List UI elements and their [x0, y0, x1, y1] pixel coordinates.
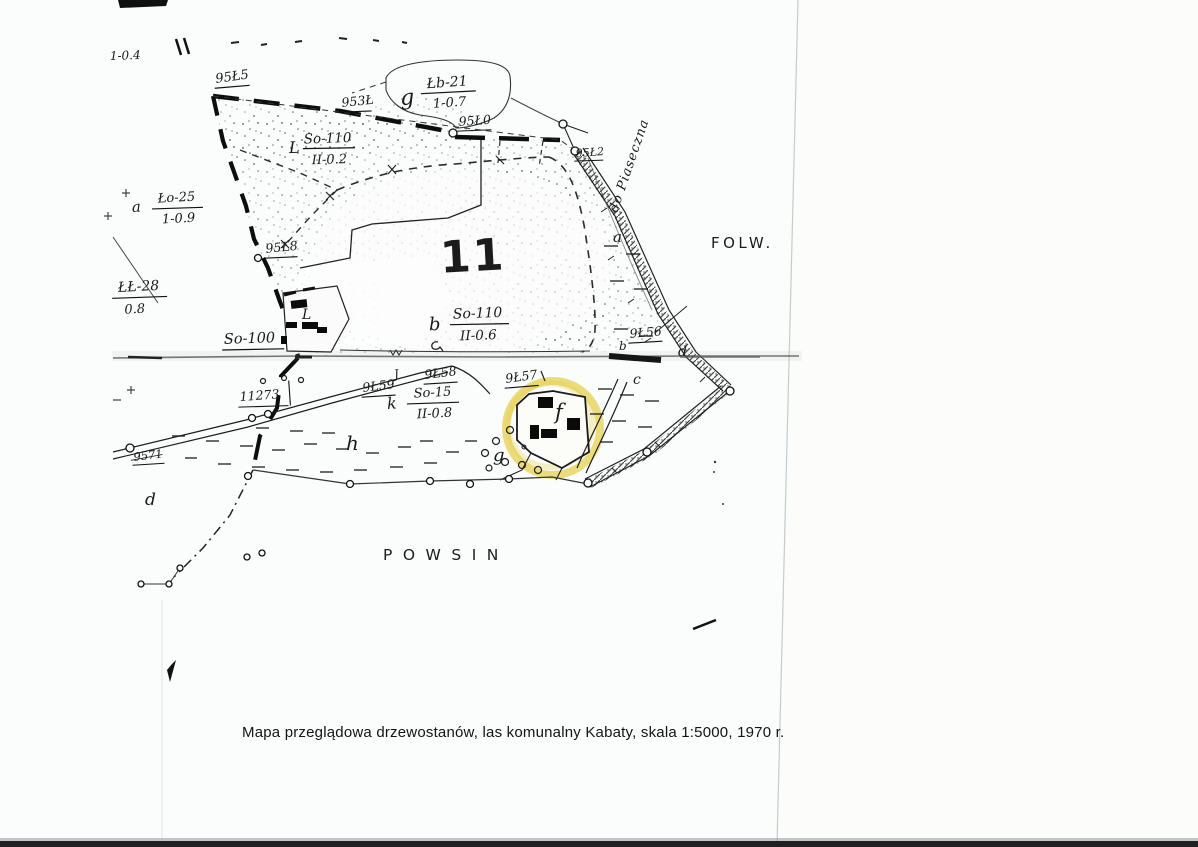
svg-text:So-15: So-15 — [413, 385, 451, 402]
svg-text:c: c — [633, 372, 641, 388]
svg-text:II-0.2: II-0.2 — [310, 152, 347, 168]
svg-text:L: L — [288, 138, 300, 157]
svg-text:1-0.7: 1-0.7 — [432, 95, 467, 112]
svg-text:So-110: So-110 — [303, 130, 352, 148]
svg-text:h: h — [346, 431, 359, 455]
svg-text:a: a — [613, 228, 622, 246]
svg-text:L: L — [301, 307, 311, 323]
fold-smudge-line — [112, 351, 802, 361]
svg-text:a: a — [131, 198, 141, 216]
svg-text:ŁŁ-28: ŁŁ-28 — [117, 278, 160, 296]
svg-text:9Ł56: 9Ł56 — [629, 323, 662, 341]
region-folw-label: FOLW. — [711, 234, 774, 252]
svg-text:b: b — [619, 339, 627, 353]
svg-text:g: g — [399, 85, 415, 111]
svg-text:Łb-21: Łb-21 — [425, 73, 468, 92]
svg-text:d: d — [145, 490, 156, 510]
svg-text:11273: 11273 — [239, 386, 280, 404]
map-caption: Mapa przeglądowa drzewostanów, las komun… — [242, 724, 802, 741]
compartment-number: 11 — [439, 229, 507, 283]
svg-text:1-0.9: 1-0.9 — [162, 211, 196, 228]
svg-text:95Ł2: 95Ł2 — [575, 145, 604, 160]
svg-text:So-110: So-110 — [453, 305, 503, 323]
svg-text:So-100: So-100 — [224, 330, 276, 348]
svg-text:II-0.8: II-0.8 — [416, 406, 453, 423]
svg-text:II-0.6: II-0.6 — [459, 327, 498, 344]
svg-text:g: g — [493, 445, 505, 466]
svg-text:d: d — [678, 344, 687, 360]
svg-text:0.8: 0.8 — [124, 302, 145, 318]
svg-text:95Ł0: 95Ł0 — [458, 112, 491, 129]
svg-text:k: k — [386, 393, 397, 412]
region-powsin-label: POWSIN — [383, 546, 509, 564]
edge-fragment-label: 1-0.4 — [110, 48, 141, 63]
svg-text:b: b — [429, 314, 441, 335]
forest-map-drawing: 95Ł5 953Ł 95Ł0 95Ł2 95Ł8 9Ł56 9Ł57 9Ł58 … — [0, 0, 1198, 847]
scanned-map-page: 95Ł5 953Ł 95Ł0 95Ł2 95Ł8 9Ł56 9Ł57 9Ł58 … — [0, 0, 1198, 847]
svg-text:Ło-25: Ło-25 — [156, 190, 195, 207]
